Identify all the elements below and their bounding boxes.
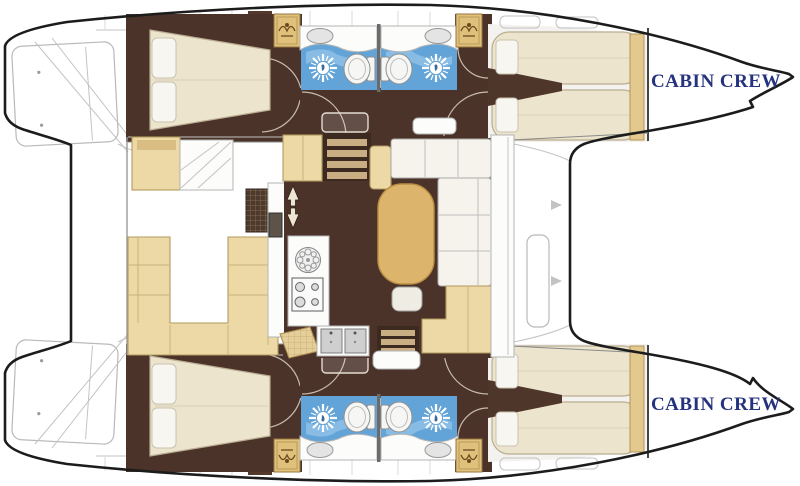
- twin-sinks-icon: [317, 326, 369, 356]
- settee: [438, 178, 491, 286]
- round-burner-icon: [296, 248, 321, 273]
- stairs-port-hull: [323, 133, 371, 181]
- foredeck: [514, 144, 570, 342]
- hatch: [373, 351, 420, 369]
- salon-front-wall: [491, 135, 514, 357]
- cabin-crew-label-bottom: CABIN CREW: [651, 394, 781, 415]
- hatch-window: [269, 213, 282, 237]
- galley-bulkhead: [268, 183, 286, 337]
- cabin-crew-label-top: CABIN CREW: [651, 71, 781, 92]
- seat-cushion: [370, 146, 391, 189]
- salon-table: [378, 184, 434, 284]
- entry-steps: [180, 140, 233, 190]
- stool: [392, 287, 422, 311]
- hull-starboard: [96, 344, 648, 475]
- hatch: [413, 118, 456, 134]
- settee: [391, 139, 491, 178]
- aft-sofa: [128, 237, 278, 355]
- stove-burners-icon: [292, 278, 323, 311]
- salon: [127, 118, 514, 369]
- hull-port: [96, 11, 648, 142]
- catamaran-floor-plan: CABIN CREW CABIN CREW: [0, 0, 800, 486]
